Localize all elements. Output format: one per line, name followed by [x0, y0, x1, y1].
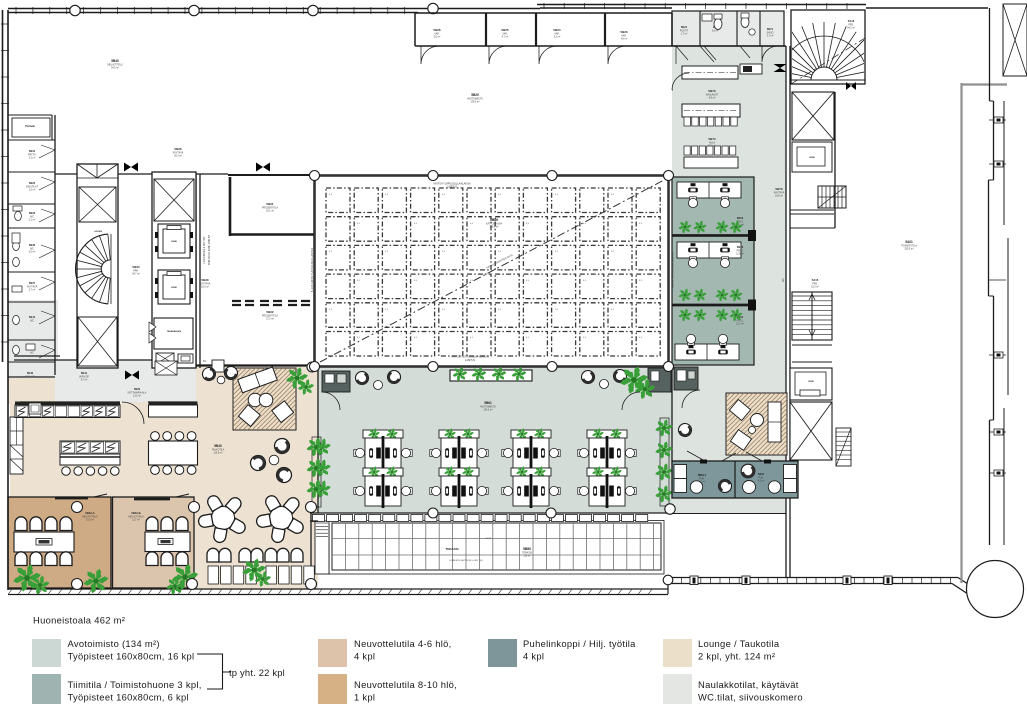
svg-text:5B46: 5B46: [27, 371, 34, 375]
svg-text:Tiimitila / Toimistohuone 3 kp: Tiimitila / Toimistohuone 3 kpl,: [68, 679, 202, 690]
svg-text:5B61: 5B61: [484, 401, 492, 405]
svg-text:INVA-WC: INVA-WC: [25, 376, 35, 379]
svg-text:2,7 m²: 2,7 m²: [29, 289, 36, 292]
svg-text:PARI OVI LK KSHL Y.DIN 8/5: PARI OVI LK KSHL Y.DIN 8/5: [208, 234, 211, 265]
svg-text:178,0 m²: 178,0 m²: [470, 101, 479, 104]
svg-text:PROJ.: PROJ.: [737, 321, 744, 323]
svg-text:Naulakkotilat, käytävät: Naulakkotilat, käytävät: [698, 679, 799, 690]
svg-text:5A16: 5A16: [848, 19, 855, 23]
svg-text:Työpisteet 160x80cm, 16 kpl: Työpisteet 160x80cm, 16 kpl: [68, 650, 195, 661]
svg-text:4,6 m²: 4,6 m²: [621, 38, 628, 41]
svg-text:KÄYTÄVÄ: KÄYTÄVÄ: [173, 152, 184, 155]
svg-text:5B22: 5B22: [29, 181, 36, 185]
svg-text:HISSI: HISSI: [808, 381, 814, 383]
svg-text:KÄYTÄVÄ: KÄYTÄVÄ: [774, 192, 785, 195]
svg-text:54,5 m²: 54,5 m²: [111, 67, 119, 70]
svg-text:134,0 m²: 134,0 m²: [483, 409, 492, 412]
svg-text:TOIMISTOTILA: TOIMISTOTILA: [901, 245, 917, 248]
svg-text:5B34: 5B34: [132, 265, 140, 269]
svg-text:tp yht. 22 kpl: tp yht. 22 kpl: [229, 667, 285, 678]
svg-text:TERASSI: TERASSI: [522, 552, 532, 555]
svg-text:KÄYTÄVÄ: KÄYTÄVÄ: [200, 283, 211, 286]
svg-text:3,2 m²: 3,2 m²: [29, 157, 36, 160]
svg-text:HISSI: HISSI: [171, 287, 177, 289]
svg-text:5,3 m²: 5,3 m²: [554, 36, 561, 39]
svg-text:NEUVOTTELU: NEUVOTTELU: [107, 65, 123, 67]
svg-text:12,6 m²: 12,6 m²: [736, 253, 744, 256]
svg-text:4,0 m²: 4,0 m²: [699, 481, 706, 484]
svg-text:LASITUS: LASITUS: [465, 359, 475, 362]
svg-text:VAR.: VAR.: [434, 33, 440, 36]
svg-text:19,1 m²: 19,1 m²: [266, 210, 274, 213]
svg-text:+43,65: +43,65: [485, 538, 493, 540]
svg-text:4,7 m²: 4,7 m²: [502, 36, 509, 39]
svg-text:18,8 m²: 18,8 m²: [775, 195, 783, 198]
svg-text:PROJEKTITILA: PROJEKTITILA: [262, 315, 279, 318]
svg-text:VAR.: VAR.: [502, 33, 508, 36]
svg-text:PRT.TK: PRT.TK: [28, 155, 36, 157]
svg-text:WC: WC: [30, 353, 34, 355]
svg-text:5B23: 5B23: [620, 30, 628, 34]
svg-text:5B30: 5B30: [201, 278, 209, 282]
svg-text:5A21: 5A21: [758, 473, 765, 476]
svg-text:13,7 m²: 13,7 m²: [132, 519, 140, 522]
svg-text:5B71: 5B71: [767, 27, 774, 31]
svg-text:6,7 m²: 6,7 m²: [81, 379, 88, 382]
svg-text:5A01: 5A01: [905, 240, 913, 244]
svg-text:2,1 m²: 2,1 m²: [29, 219, 36, 222]
svg-text:24,2 m²: 24,2 m²: [847, 27, 855, 30]
svg-text:Neuvottelutila 8-10 hlö,: Neuvottelutila 8-10 hlö,: [354, 679, 457, 690]
svg-text:Avotoimisto (134 m²): Avotoimisto (134 m²): [68, 638, 160, 649]
svg-text:20,3 m²: 20,3 m²: [174, 155, 182, 158]
svg-text:5B33: 5B33: [29, 211, 36, 215]
svg-text:5B66: 5B66: [490, 218, 498, 222]
svg-text:5B31: 5B31: [29, 149, 36, 153]
svg-text:AULA: AULA: [709, 142, 715, 145]
svg-text:5B74: 5B74: [708, 137, 716, 141]
svg-text:15,3 m²: 15,3 m²: [811, 286, 819, 289]
svg-text:AVOTOIMISTO: AVOTOIMISTO: [467, 98, 483, 101]
svg-text:5B42-A: 5B42-A: [85, 511, 94, 515]
svg-text:5B42-B: 5B42-B: [131, 511, 140, 515]
svg-text:27,2 m²: 27,2 m²: [266, 318, 274, 321]
svg-text:5,5 m²: 5,5 m²: [434, 36, 441, 39]
svg-text:KV: KV: [203, 360, 207, 363]
svg-text:2,7 m²: 2,7 m²: [767, 35, 774, 38]
svg-text:12,1 m²: 12,1 m²: [736, 323, 744, 326]
svg-text:HISSI: HISSI: [809, 157, 815, 159]
svg-text:PROJEKTITILA: PROJEKTITILA: [262, 207, 279, 210]
svg-text:VAR.: VAR.: [621, 35, 627, 38]
svg-text:4 kpl: 4 kpl: [523, 650, 544, 661]
svg-text:Lounge / Taukotila: Lounge / Taukotila: [698, 638, 780, 649]
svg-text:253,5 m²: 253,5 m²: [904, 248, 913, 251]
svg-text:5B37: 5B37: [29, 281, 36, 285]
svg-text:SIIVIÖ: SIIVIÖ: [767, 32, 774, 35]
svg-text:5B70: 5B70: [775, 187, 783, 191]
svg-text:110,5 m²: 110,5 m²: [214, 452, 223, 455]
svg-text:5B40: 5B40: [111, 59, 119, 63]
svg-text:NAULAKOT: NAULAKOT: [706, 94, 719, 97]
svg-text:5B20: 5B20: [471, 93, 479, 97]
svg-text:POSTIT: POSTIT: [680, 31, 689, 33]
svg-text:5B35: 5B35: [174, 147, 182, 151]
svg-text:5B61.1: 5B61.1: [698, 474, 707, 477]
svg-text:5B53: 5B53: [737, 245, 744, 249]
svg-text:5. KRS KATON YLÄPUOLINEN LASIT: 5. KRS KATON YLÄPUOLINEN LASITUS: [311, 247, 314, 292]
svg-text:5B25: 5B25: [501, 28, 509, 32]
svg-text:KATTOIKKUNA: KATTOIKKUNA: [486, 223, 502, 226]
svg-text:Portaala: Portaala: [25, 125, 35, 128]
svg-text:PUH.: PUH.: [699, 479, 705, 481]
svg-text:129 m²: 129 m²: [523, 555, 530, 558]
svg-text:NEUVOTTELU: NEUVOTTELU: [128, 517, 144, 519]
svg-text:5B01: 5B01: [266, 202, 274, 206]
svg-text:Huoneistoala 462 m²: Huoneistoala 462 m²: [33, 615, 125, 626]
svg-text:5,5 m²: 5,5 m²: [29, 251, 36, 254]
svg-text:5B52: 5B52: [737, 216, 744, 220]
svg-text:5B73: 5B73: [708, 89, 716, 93]
svg-text:Työpisteet 160x80cm, 6 kpl: Työpisteet 160x80cm, 6 kpl: [68, 691, 189, 702]
svg-text:VAR.KOP: VAR.KOP: [79, 376, 90, 379]
svg-text:LASI KIINTEÄ 4 JKS TSO: LASI KIINTEÄ 4 JKS TSO: [203, 236, 206, 263]
svg-text:178,0 m²: 178,0 m²: [489, 226, 498, 229]
svg-text:KV: KV: [781, 278, 785, 282]
svg-text:HISSI: HISSI: [171, 241, 177, 243]
svg-text:Neuvottelutila 4-6 hlö,: Neuvottelutila 4-6 hlö,: [354, 638, 452, 649]
svg-text:2 kpl, yht. 124 m²: 2 kpl, yht. 124 m²: [698, 650, 775, 661]
svg-text:3,5 m²: 3,5 m²: [29, 189, 36, 192]
svg-text:1 kpl: 1 kpl: [354, 691, 375, 702]
svg-text:PROJ.: PROJ.: [737, 251, 744, 253]
svg-text:34,7 m²: 34,7 m²: [132, 273, 140, 276]
svg-text:5B02: 5B02: [266, 310, 274, 314]
svg-text:5B26: 5B26: [433, 28, 441, 32]
svg-text:4,2 m²: 4,2 m²: [758, 480, 765, 483]
svg-text:+43,800: +43,800: [94, 230, 103, 233]
svg-text:5A15: 5A15: [812, 278, 819, 282]
svg-text:LASITUS: LASITUS: [447, 186, 457, 189]
svg-text:5B44: 5B44: [29, 315, 36, 319]
svg-text:13,5 m²: 13,5 m²: [133, 395, 141, 398]
svg-text:5B40: 5B40: [214, 444, 222, 448]
svg-text:8,9 m²: 8,9 m²: [709, 97, 716, 100]
svg-text:5B36: 5B36: [29, 243, 36, 247]
svg-text:WC: WC: [30, 217, 34, 219]
svg-text:TAUKOTILA: TAUKOTILA: [212, 449, 225, 452]
svg-text:5B41: 5B41: [81, 371, 88, 375]
svg-text:2,6 m²: 2,6 m²: [712, 30, 719, 33]
svg-text:AVOTOIMISTO: AVOTOIMISTO: [480, 406, 496, 409]
svg-text:KRT.TAVARA-ALA: KRT.TAVARA-ALA: [128, 392, 147, 395]
svg-text:WC: WC: [30, 249, 34, 251]
svg-text:NEUVOTTELU: NEUVOTTELU: [82, 517, 98, 519]
svg-text:VAR.: VAR.: [554, 33, 560, 36]
svg-text:Puhelinkoppi / Hilj. työtila: Puhelinkoppi / Hilj. työtila: [523, 638, 636, 649]
svg-text:SIIVUTA.KT: SIIVUTA.KT: [26, 186, 39, 189]
svg-text:5B24: 5B24: [553, 28, 561, 32]
svg-text:PUH.: PUH.: [758, 478, 764, 480]
svg-text:LUMIESTE KATTOON 5 KRS TSO: LUMIESTE KATTOON 5 KRS TSO: [449, 559, 483, 562]
svg-text:5B21: 5B21: [681, 25, 688, 29]
svg-text:PRS.: PRS.: [812, 284, 818, 286]
svg-text:TAVARAHISSI: TAVARAHISSI: [167, 330, 182, 333]
svg-text:4 kpl: 4 kpl: [354, 650, 375, 661]
svg-text:PRS.: PRS.: [848, 25, 854, 27]
svg-text:WC.tilat, siivouskomero: WC.tilat, siivouskomero: [698, 691, 803, 702]
svg-text:KÄYTÄVÄ: KÄYTÄVÄ: [27, 286, 38, 289]
svg-text:PRH.: PRH.: [133, 271, 139, 273]
svg-text:18,3 m²: 18,3 m²: [201, 286, 209, 289]
svg-text:WC: WC: [30, 321, 34, 323]
svg-text:5B80: 5B80: [523, 547, 531, 551]
svg-text:5B29: 5B29: [134, 387, 141, 391]
svg-text:TERASSI: TERASSI: [445, 547, 458, 551]
svg-text:19,5 m²: 19,5 m²: [86, 519, 94, 522]
svg-text:30,0 m²: 30,0 m²: [708, 145, 716, 148]
svg-text:1,7 m²: 1,7 m²: [681, 33, 688, 36]
